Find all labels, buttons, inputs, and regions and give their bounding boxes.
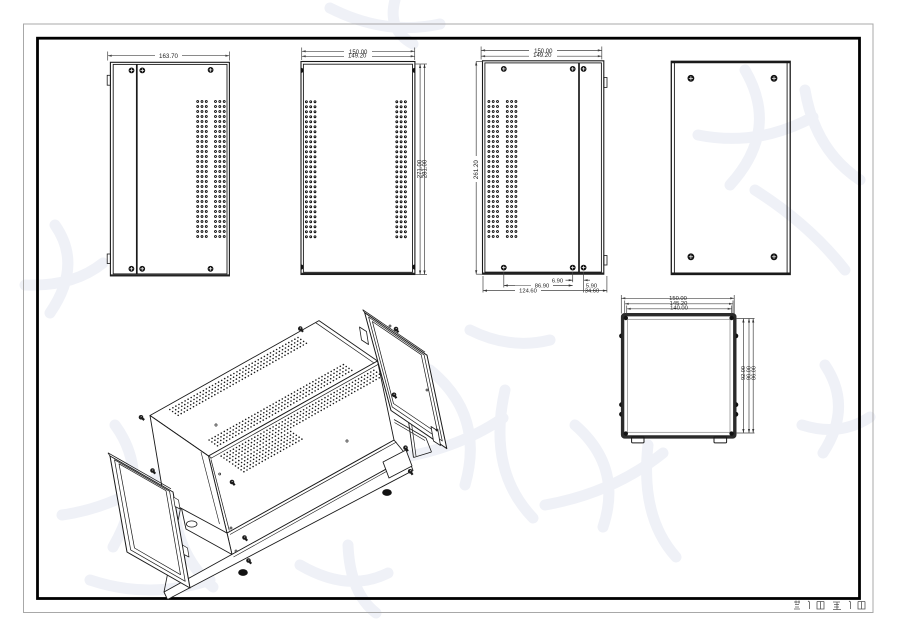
svg-text:34.60: 34.60 — [585, 289, 600, 295]
svg-text:149.20: 149.20 — [533, 53, 552, 59]
svg-text:140.00: 140.00 — [670, 306, 688, 312]
svg-text:261.20: 261.20 — [473, 160, 480, 179]
svg-text:6.90: 6.90 — [552, 279, 563, 285]
svg-text:281.00: 281.00 — [423, 159, 429, 178]
svg-text:86.90: 86.90 — [535, 284, 550, 290]
svg-text:86.00: 86.00 — [752, 366, 758, 380]
svg-text:149.20: 149.20 — [348, 54, 367, 60]
svg-text:163.70: 163.70 — [159, 53, 178, 60]
svg-text:124.60: 124.60 — [519, 289, 537, 295]
